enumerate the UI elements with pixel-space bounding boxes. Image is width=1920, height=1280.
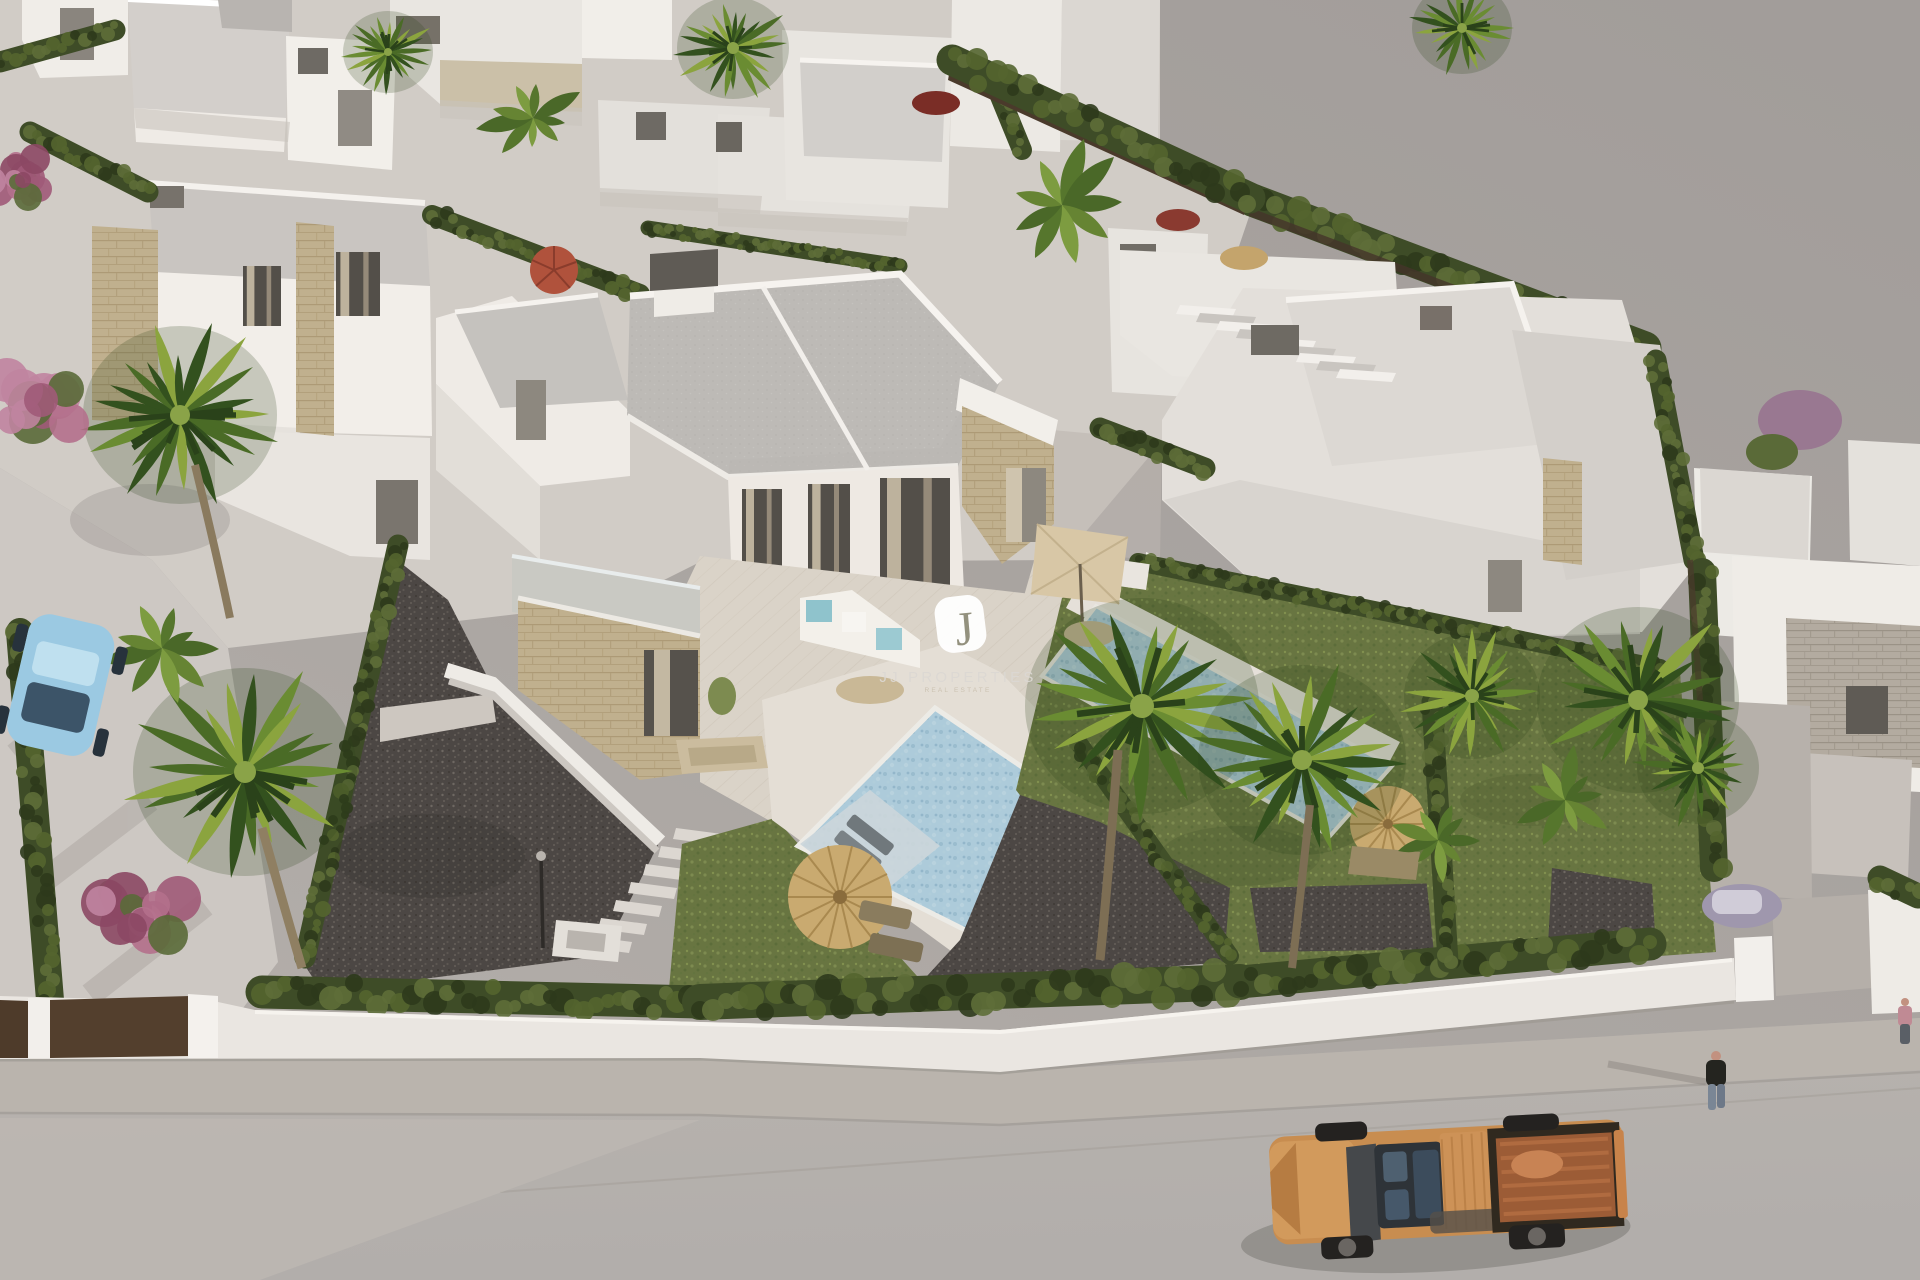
svg-text:REAL ESTATE: REAL ESTATE <box>924 687 991 694</box>
svg-text:JJ PROPERTIES: JJ PROPERTIES <box>879 669 1036 686</box>
